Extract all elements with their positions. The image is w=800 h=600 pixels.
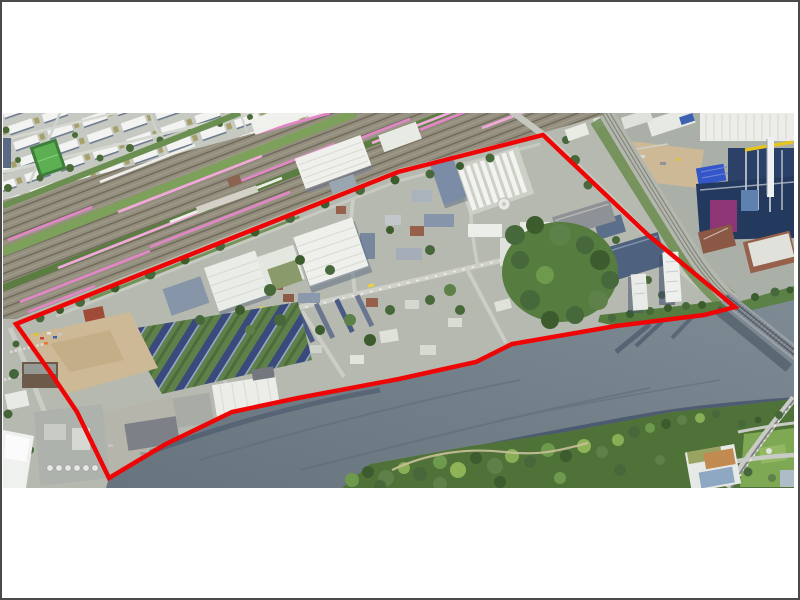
silo-facility	[34, 404, 110, 486]
office-building	[685, 444, 741, 492]
aerial-photo	[0, 89, 800, 492]
screenshot-frame	[0, 0, 800, 600]
chimney	[767, 137, 774, 197]
aerial-photo-figure	[0, 0, 800, 600]
